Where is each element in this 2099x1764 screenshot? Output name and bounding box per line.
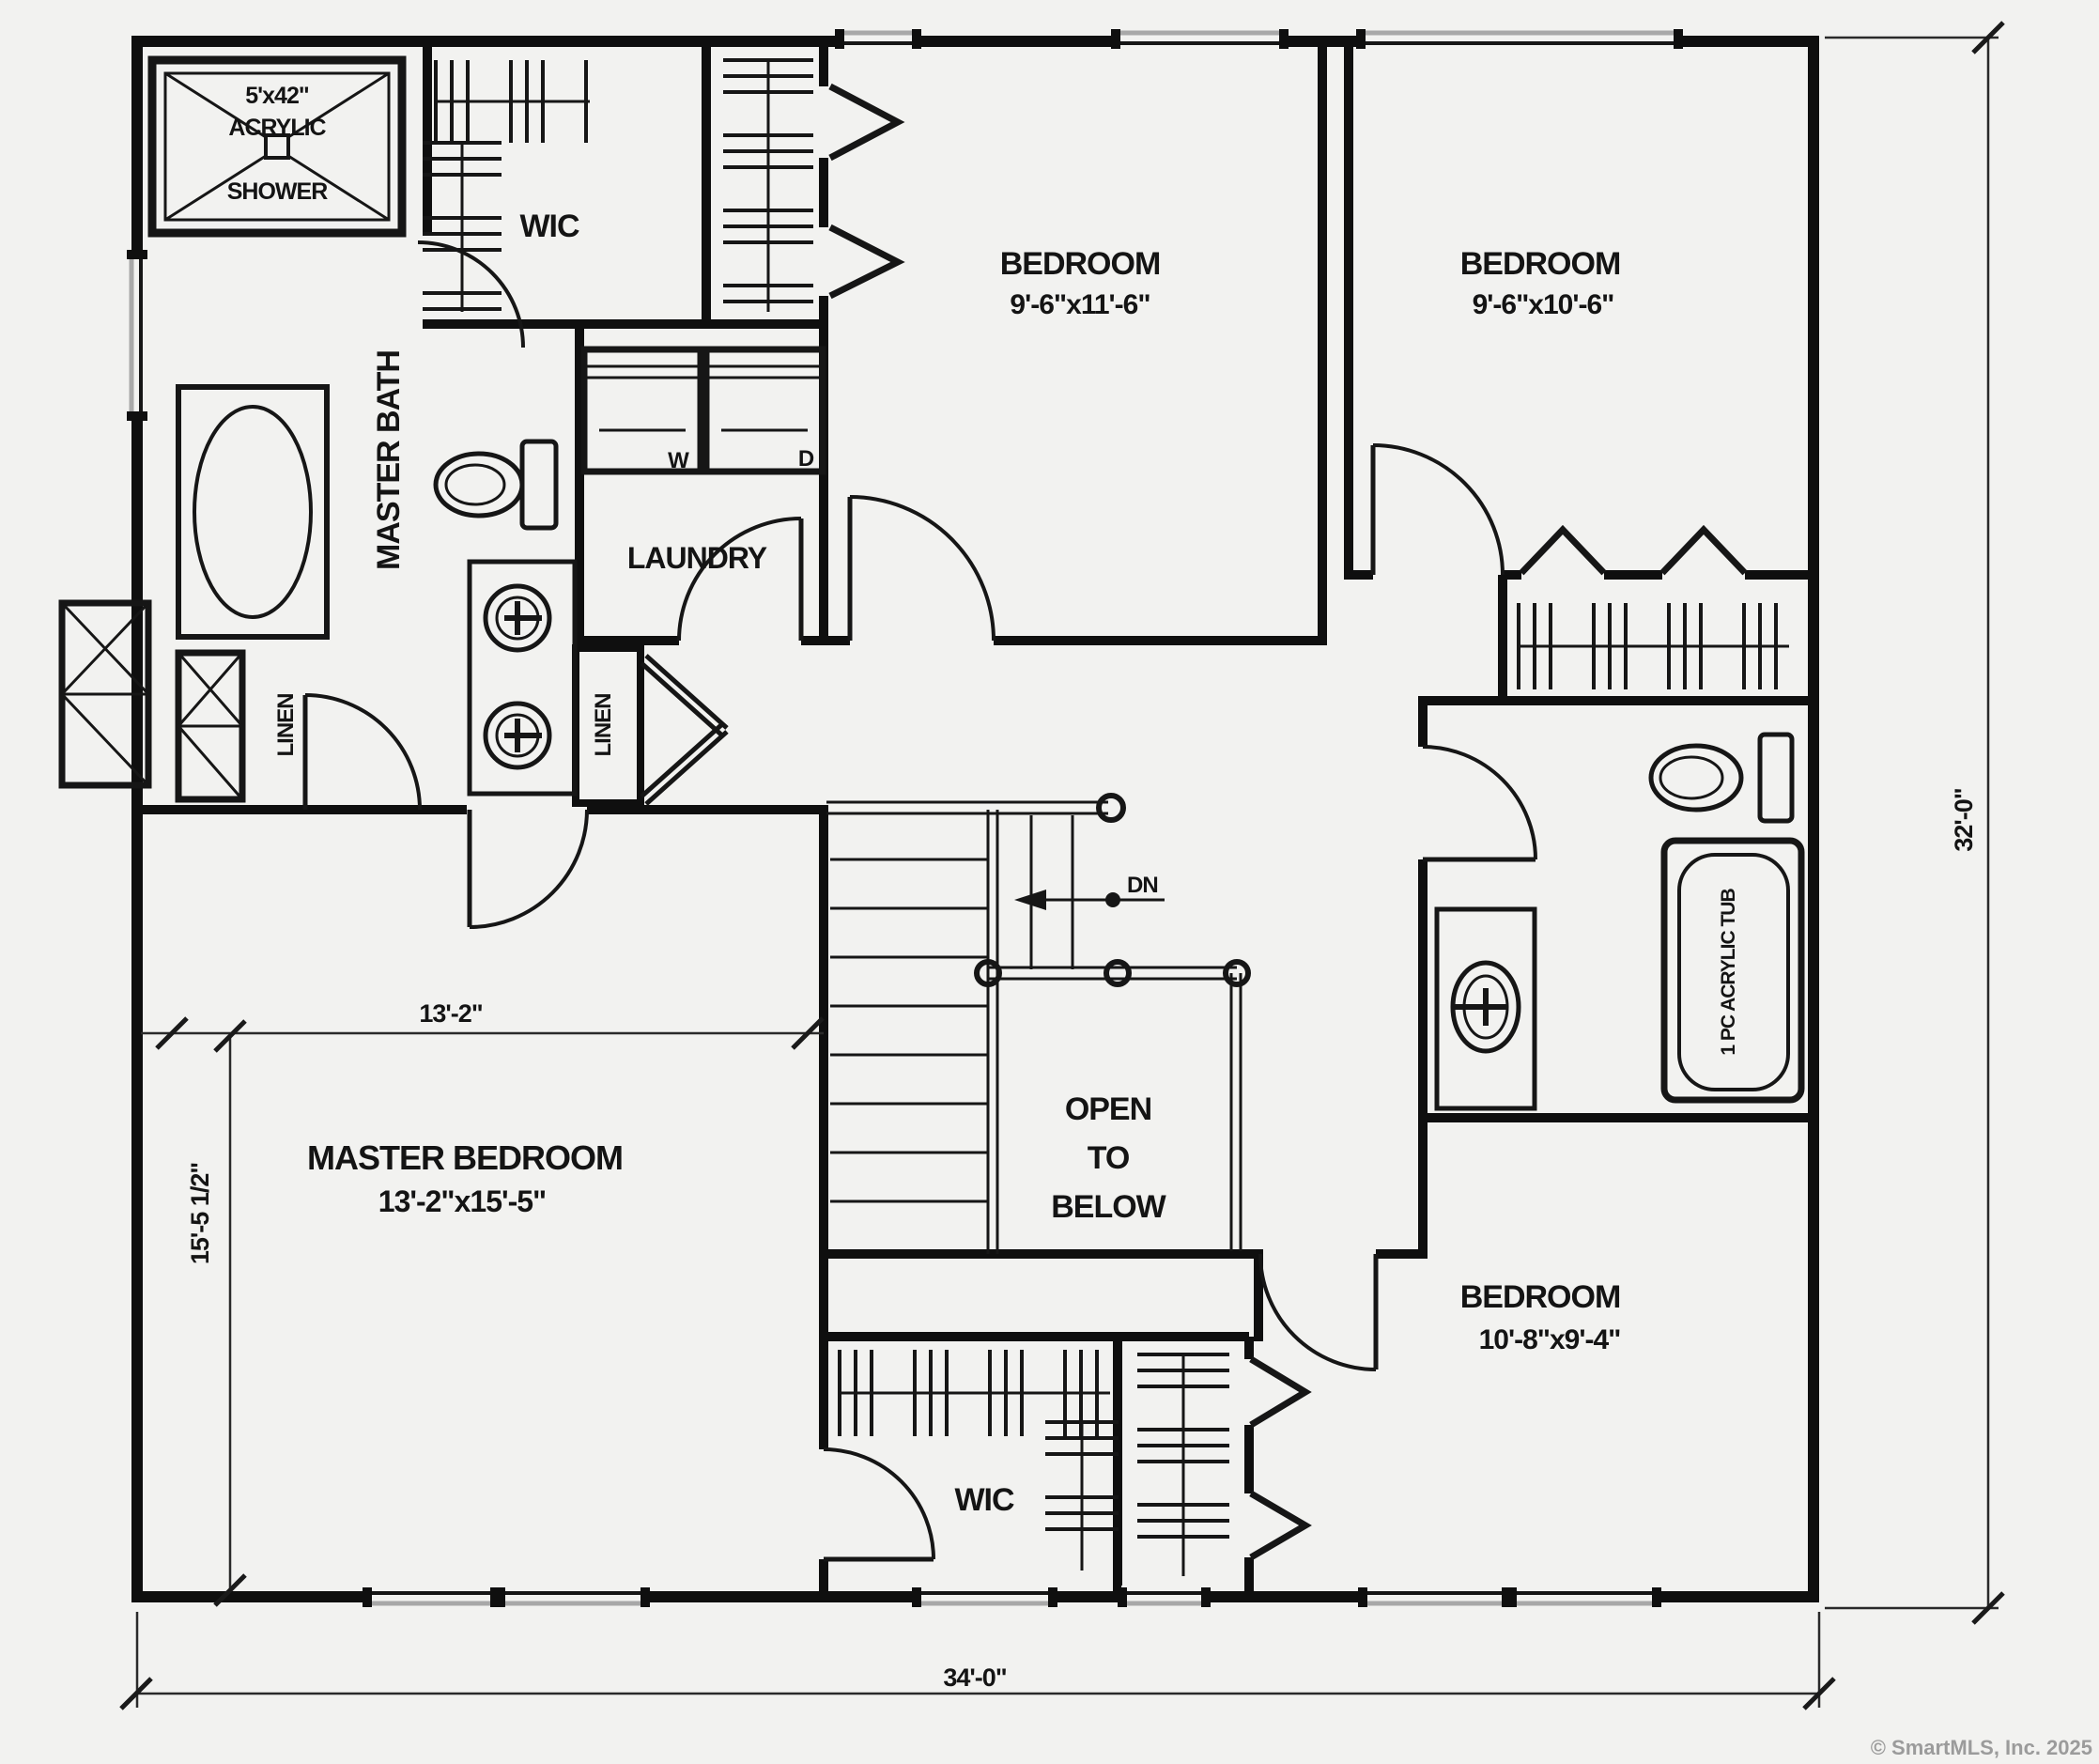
dim-master-width-label: 13'-2" bbox=[419, 999, 482, 1028]
chase-and-linen-left bbox=[62, 603, 242, 799]
open-below-line3: BELOW bbox=[1051, 1189, 1166, 1225]
master-toilet-fixture bbox=[436, 441, 556, 528]
bedroom3-closet-bifold bbox=[1251, 1359, 1305, 1557]
tub-basin bbox=[194, 407, 311, 617]
bedroom1-closet-bifold bbox=[830, 86, 898, 296]
shower-label-size: 5'x42" bbox=[245, 83, 309, 109]
linen-left-x-lines bbox=[178, 653, 242, 799]
hall-sink-faucet bbox=[1454, 988, 1506, 1026]
room-label-master-bedroom: MASTER BEDROOM bbox=[307, 1138, 623, 1177]
room-dims-master-bedroom: 13'-2"x15'-5" bbox=[378, 1184, 546, 1218]
dim-master-height-label: 15'-5 1/2" bbox=[186, 1163, 214, 1264]
room-label-wic-top: WIC bbox=[519, 209, 579, 244]
window-top-3 bbox=[1356, 27, 1683, 49]
stair-treads bbox=[830, 859, 988, 1201]
room-label-master-bath: MASTER BATH bbox=[371, 350, 407, 570]
washer-label: W bbox=[668, 448, 689, 473]
window-bottom-1 bbox=[363, 1586, 500, 1608]
dryer-detail bbox=[706, 366, 823, 430]
hall-bath-door-arc bbox=[1423, 747, 1536, 859]
dryer-label: D bbox=[798, 446, 814, 472]
linen-hall-label: LINEN bbox=[591, 694, 616, 757]
open-below-line2: TO bbox=[1088, 1140, 1130, 1176]
toilet-bowl bbox=[436, 454, 522, 516]
window-bottom-6 bbox=[1507, 1586, 1661, 1608]
room-label-bedroom2: BEDROOM bbox=[1460, 246, 1621, 282]
railing-post-4 bbox=[1226, 962, 1248, 984]
master-bedroom-door-arc bbox=[470, 810, 587, 927]
linen-left-door-arc bbox=[305, 695, 420, 810]
bedroom2-closet-bifold bbox=[1521, 530, 1745, 573]
floor-plan-page: 5'x42" ACRYLIC SHOWER WIC MASTER BATH LA… bbox=[0, 0, 2099, 1764]
window-bottom-4 bbox=[1118, 1586, 1211, 1608]
bedroom1-door-arc bbox=[850, 497, 994, 641]
stair-dn-label: DN bbox=[1127, 873, 1158, 898]
stair-top-railing bbox=[826, 802, 1108, 813]
washer-detail bbox=[584, 366, 701, 430]
room-label-bedroom3: BEDROOM bbox=[1460, 1279, 1621, 1315]
room-dims-bedroom2: 9'-6"x10'-6" bbox=[1473, 289, 1614, 320]
window-top-1 bbox=[835, 27, 921, 49]
window-left-1 bbox=[126, 250, 148, 421]
room-dims-bedroom1: 9'-6"x11'-6" bbox=[1010, 289, 1150, 320]
railing-post-1 bbox=[1099, 796, 1123, 820]
laundry-fixtures bbox=[584, 349, 823, 472]
hall-toilet-tank bbox=[1760, 735, 1792, 821]
linen-left-label: LINEN bbox=[273, 694, 299, 757]
room-label-laundry: LAUNDRY bbox=[627, 541, 767, 575]
master-tub-fixture bbox=[178, 387, 327, 637]
room-label-wic-bottom: WIC bbox=[954, 1482, 1014, 1518]
toilet-tank bbox=[522, 441, 556, 528]
floor-plan-canvas: 5'x42" ACRYLIC SHOWER WIC MASTER BATH LA… bbox=[0, 0, 2099, 1764]
hall-toilet-bowl-inner bbox=[1660, 757, 1722, 798]
window-bottom-3 bbox=[912, 1586, 1057, 1608]
wic-bottom-door-arc bbox=[824, 1449, 934, 1559]
window-bottom-5 bbox=[1358, 1586, 1511, 1608]
hall-toilet-bowl bbox=[1651, 746, 1741, 810]
window-top-2 bbox=[1111, 27, 1289, 49]
laundry-door-arc bbox=[679, 518, 801, 641]
dim-overall-height-label: 32'-0" bbox=[1950, 788, 1978, 851]
bedroom3-door-arc bbox=[1260, 1254, 1376, 1369]
room-label-bedroom1: BEDROOM bbox=[1000, 246, 1161, 282]
dim-overall-width-label: 34'-0" bbox=[943, 1663, 1006, 1692]
wic-top-rods bbox=[434, 101, 590, 312]
window-bottom-2 bbox=[496, 1586, 650, 1608]
shower-label-name: SHOWER bbox=[227, 178, 328, 205]
copyright-text: © SmartMLS, Inc. 2025 bbox=[1871, 1736, 2092, 1759]
sink-2-faucet bbox=[504, 719, 542, 752]
room-dims-bedroom3: 10'-8"x9'-4" bbox=[1479, 1324, 1621, 1355]
master-vanity-fixture bbox=[470, 562, 575, 794]
linen-hall-bifold-doors bbox=[641, 656, 727, 804]
bedroom2-door-arc bbox=[1373, 445, 1503, 575]
open-below-line1: OPEN bbox=[1065, 1091, 1151, 1127]
hall-bath-fixtures bbox=[1437, 735, 1801, 1108]
hall-tub-label: 1 PC ACRYLIC TUB bbox=[1718, 889, 1739, 1056]
dn-arrow-dot bbox=[1105, 892, 1120, 907]
dim-bottom-line bbox=[136, 1612, 1819, 1708]
sink-1-faucet bbox=[504, 601, 542, 635]
shower-label-material: ACRYLIC bbox=[228, 115, 326, 141]
railing-post-3 bbox=[1106, 962, 1129, 984]
toilet-bowl-inner bbox=[446, 465, 504, 504]
stair-stringer bbox=[988, 810, 997, 1254]
stairs bbox=[826, 796, 1248, 1254]
tub-deck bbox=[178, 387, 327, 637]
stair-winders bbox=[1031, 815, 1073, 969]
windows bbox=[126, 27, 1683, 1608]
